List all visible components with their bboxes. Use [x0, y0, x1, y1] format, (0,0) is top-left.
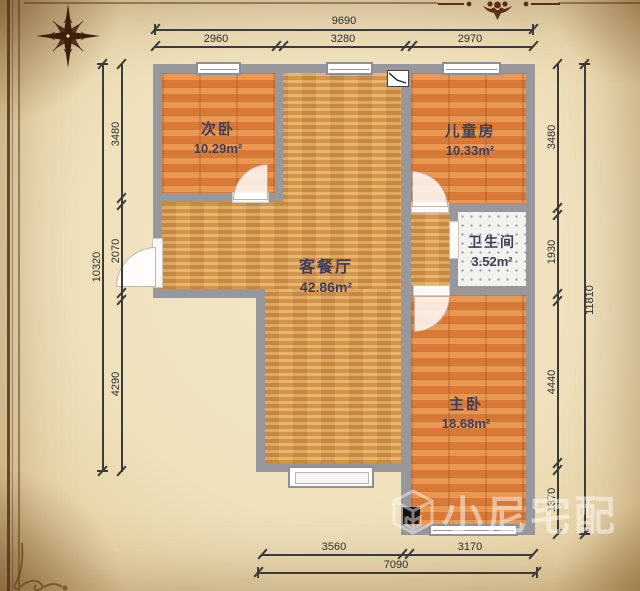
dim-left-total: 10320	[91, 252, 103, 283]
dim-bottom-total: 7090	[384, 559, 408, 571]
corner-flourish-icon	[10, 543, 80, 591]
living-top-window	[326, 62, 373, 75]
wall-center-vertical	[401, 64, 411, 535]
children-room-window	[442, 62, 501, 75]
dim-bottom-seg-1: 3560	[322, 541, 346, 553]
compass-icon	[34, 2, 102, 70]
bathroom-door	[449, 221, 459, 259]
column-block	[403, 507, 420, 524]
dim-left-seg-2: 2070	[110, 239, 122, 263]
second-bedroom-window	[196, 62, 241, 75]
dim-left-seg-1: 3480	[110, 122, 122, 146]
dim-right-seg-3: 4440	[546, 370, 558, 394]
dim-line-top-total	[155, 29, 533, 31]
wall-second-bedroom-right	[275, 64, 283, 202]
room-label-bathroom: 卫生间 3.52m²	[468, 232, 516, 269]
living-bay-window-inner	[295, 472, 369, 484]
dim-top-seg-3: 2970	[458, 33, 482, 45]
room-area: 42.86m²	[299, 279, 353, 295]
living-bay-window	[288, 466, 374, 488]
room-label-second-bedroom: 次卧 10.29m²	[194, 118, 242, 156]
room-area: 18.68m²	[442, 416, 490, 431]
living-dining-floor-lower	[265, 289, 401, 472]
room-name: 次卧	[194, 118, 242, 139]
dim-right-seg-1: 3480	[546, 125, 558, 149]
room-name: 卫生间	[468, 232, 516, 252]
dim-line-top-segments	[155, 46, 533, 48]
dim-right-seg-2: 1930	[546, 240, 558, 264]
wall-step	[153, 289, 265, 298]
floral-ornament-icon	[438, 0, 562, 24]
room-label-living-dining: 客餐厅 42.86m²	[299, 253, 353, 295]
wall-appliance-icon	[387, 70, 409, 87]
dim-top-seg-1: 2960	[204, 33, 228, 45]
frame-left-line-thin	[18, 0, 20, 591]
room-area: 3.52m²	[468, 254, 516, 269]
dim-top-total: 9690	[332, 15, 356, 27]
room-name: 儿童房	[444, 120, 495, 141]
room-label-master-bedroom: 主卧 18.68m²	[442, 393, 490, 431]
room-label-children-room: 儿童房 10.33m²	[444, 120, 495, 158]
frame-top-line-right	[558, 2, 640, 4]
dim-line-bottom-total	[258, 572, 537, 574]
room-area: 10.29m²	[194, 141, 242, 156]
dim-line-bottom-segments	[262, 554, 533, 556]
dim-right-seg-4: 1370	[546, 488, 558, 512]
master-bedroom-door	[413, 285, 450, 296]
hallway-floor	[411, 212, 450, 286]
master-bedroom-window	[429, 524, 518, 536]
wall-right	[526, 64, 535, 535]
dim-bottom-seg-2: 3170	[458, 541, 482, 553]
frame-left-line-mid	[12, 0, 13, 591]
dim-top-seg-2: 3280	[331, 33, 355, 45]
floor-plan-canvas: 次卧 10.29m² 儿童房 10.33m² 卫生间 3.52m² 客餐厅 42…	[0, 0, 640, 591]
frame-left-line-thick	[7, 0, 10, 591]
wall-left-lower	[256, 289, 265, 472]
room-name: 客餐厅	[299, 253, 353, 277]
dim-left-seg-3: 4290	[110, 372, 122, 396]
room-name: 主卧	[442, 393, 490, 414]
dim-right-total: 11810	[584, 285, 596, 315]
room-area: 10.33m²	[444, 143, 495, 158]
